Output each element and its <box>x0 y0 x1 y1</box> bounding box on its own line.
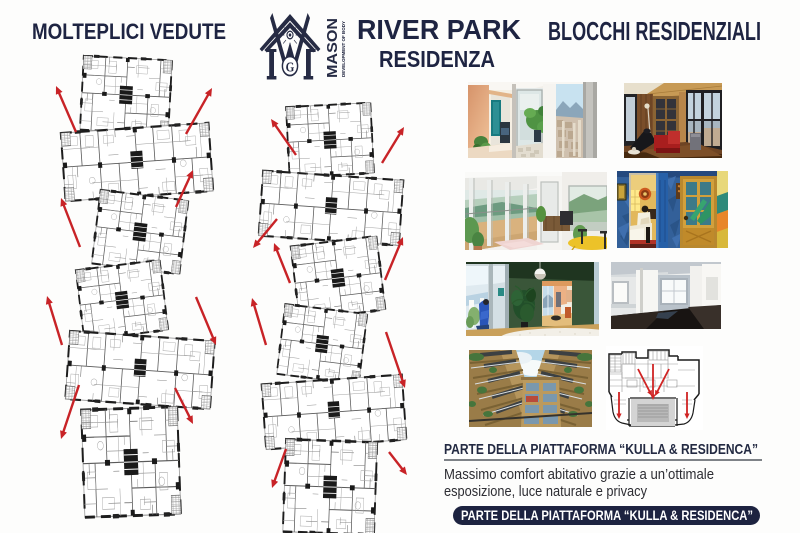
svg-text:RIVER PARK: RIVER PARK <box>357 14 521 45</box>
svg-text:Massimo comfort abitativo graz: Massimo comfort abitativo grazie a un’ot… <box>444 466 714 483</box>
svg-text:DEVELOPMENT OF BODY: DEVELOPMENT OF BODY <box>341 21 346 77</box>
svg-text:PARTE DELLA PIATTAFORMA “KULLA: PARTE DELLA PIATTAFORMA “KULLA & RESIDEN… <box>461 508 753 523</box>
svg-text:PARTE DELLA PIATTAFORMA “KULL: PARTE DELLA PIATTAFORMA “KULLA & RESIDEN… <box>444 441 758 458</box>
svg-text:esposizione, luce naturale e p: esposizione, luce naturale e privacy <box>444 483 647 500</box>
svg-text:G: G <box>286 59 295 74</box>
svg-text:MOLTEPLICI VEDUTE: MOLTEPLICI VEDUTE <box>32 19 226 44</box>
svg-text:BLOCCHI RESIDENZIALI: BLOCCHI RESIDENZIALI <box>548 16 761 46</box>
svg-text:RESIDENZA: RESIDENZA <box>379 46 495 72</box>
svg-text:MASON: MASON <box>324 18 341 78</box>
